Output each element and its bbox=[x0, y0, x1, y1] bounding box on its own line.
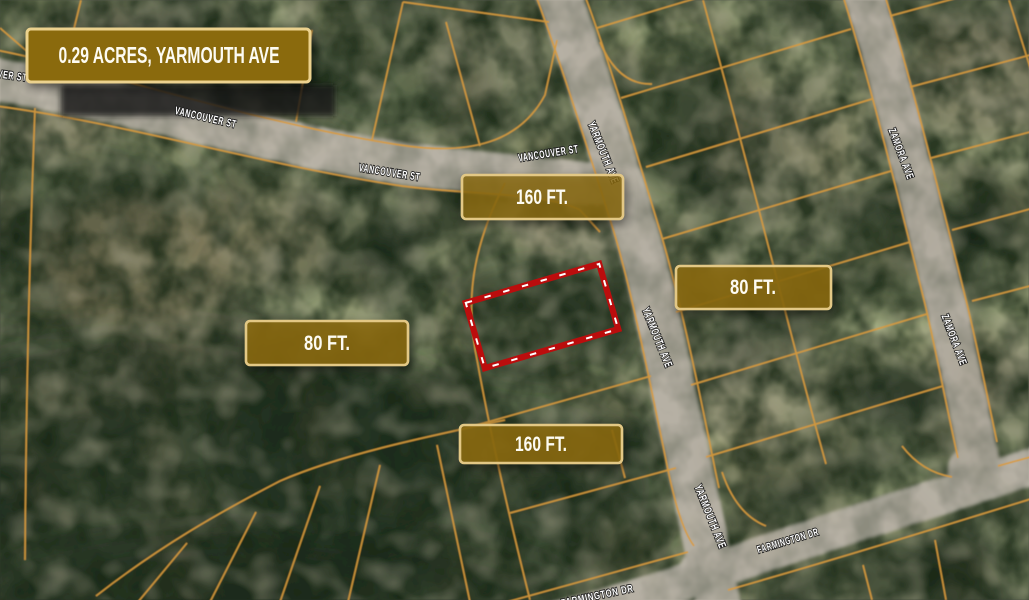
svg-text:80 FT.: 80 FT. bbox=[304, 332, 350, 355]
svg-text:160 FT.: 160 FT. bbox=[516, 186, 568, 209]
svg-text:160 FT.: 160 FT. bbox=[515, 433, 567, 456]
svg-text:0.29 ACRES, YARMOUTH AVE: 0.29 ACRES, YARMOUTH AVE bbox=[59, 42, 280, 68]
svg-text:80 FT.: 80 FT. bbox=[730, 276, 776, 299]
